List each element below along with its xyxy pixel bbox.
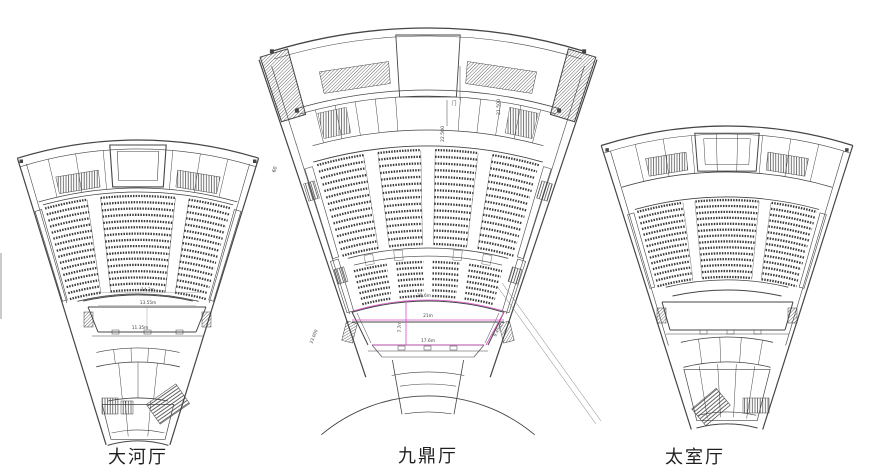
jiuding-dim-stage-depth: 7.7m [397,322,402,333]
jiuding-annotations: 22.500 21.500 23.000 60 门 [271,99,502,344]
caption-taishi-hall: 太室厅 [635,443,755,469]
jiuding-elevation-side: 23.000 [309,328,319,344]
dahe-dim-stage-back: 11.35m [132,325,149,331]
jiuding-door-label: 门 [451,100,456,107]
floor-plan-dahe-hall [17,140,258,445]
scan-artifact-line [0,253,2,319]
dahe-dim-opening: 13.55m [140,300,157,306]
floor-plan-taishi-hall [601,126,853,429]
jiuding-grid-axis-label: 60 [271,166,279,174]
floor-plans-canvas: 14.3m 13.55m 11.35m 20.6m 21m 7.7m 17.6m… [0,0,872,470]
jiuding-dim-stage-back: 17.6m [421,338,435,344]
jiuding-elevation-lower: 21.500 [496,99,502,115]
caption-jiuding-hall: 九鼎厅 [368,442,488,468]
dahe-dim-proscenium-arc: 14.3m [141,287,155,293]
architectural-drawing: 14.3m 13.55m 11.35m 20.6m 21m 7.7m 17.6m… [0,0,872,470]
jiuding-dim-opening: 21m [423,313,433,319]
caption-dahe-hall: 大河厅 [78,443,198,469]
jiuding-dim-proscenium-arc: 20.6m [417,293,431,299]
jiuding-elevation-upper: 22.500 [440,126,446,142]
floor-plan-jiuding-hall [259,28,601,435]
